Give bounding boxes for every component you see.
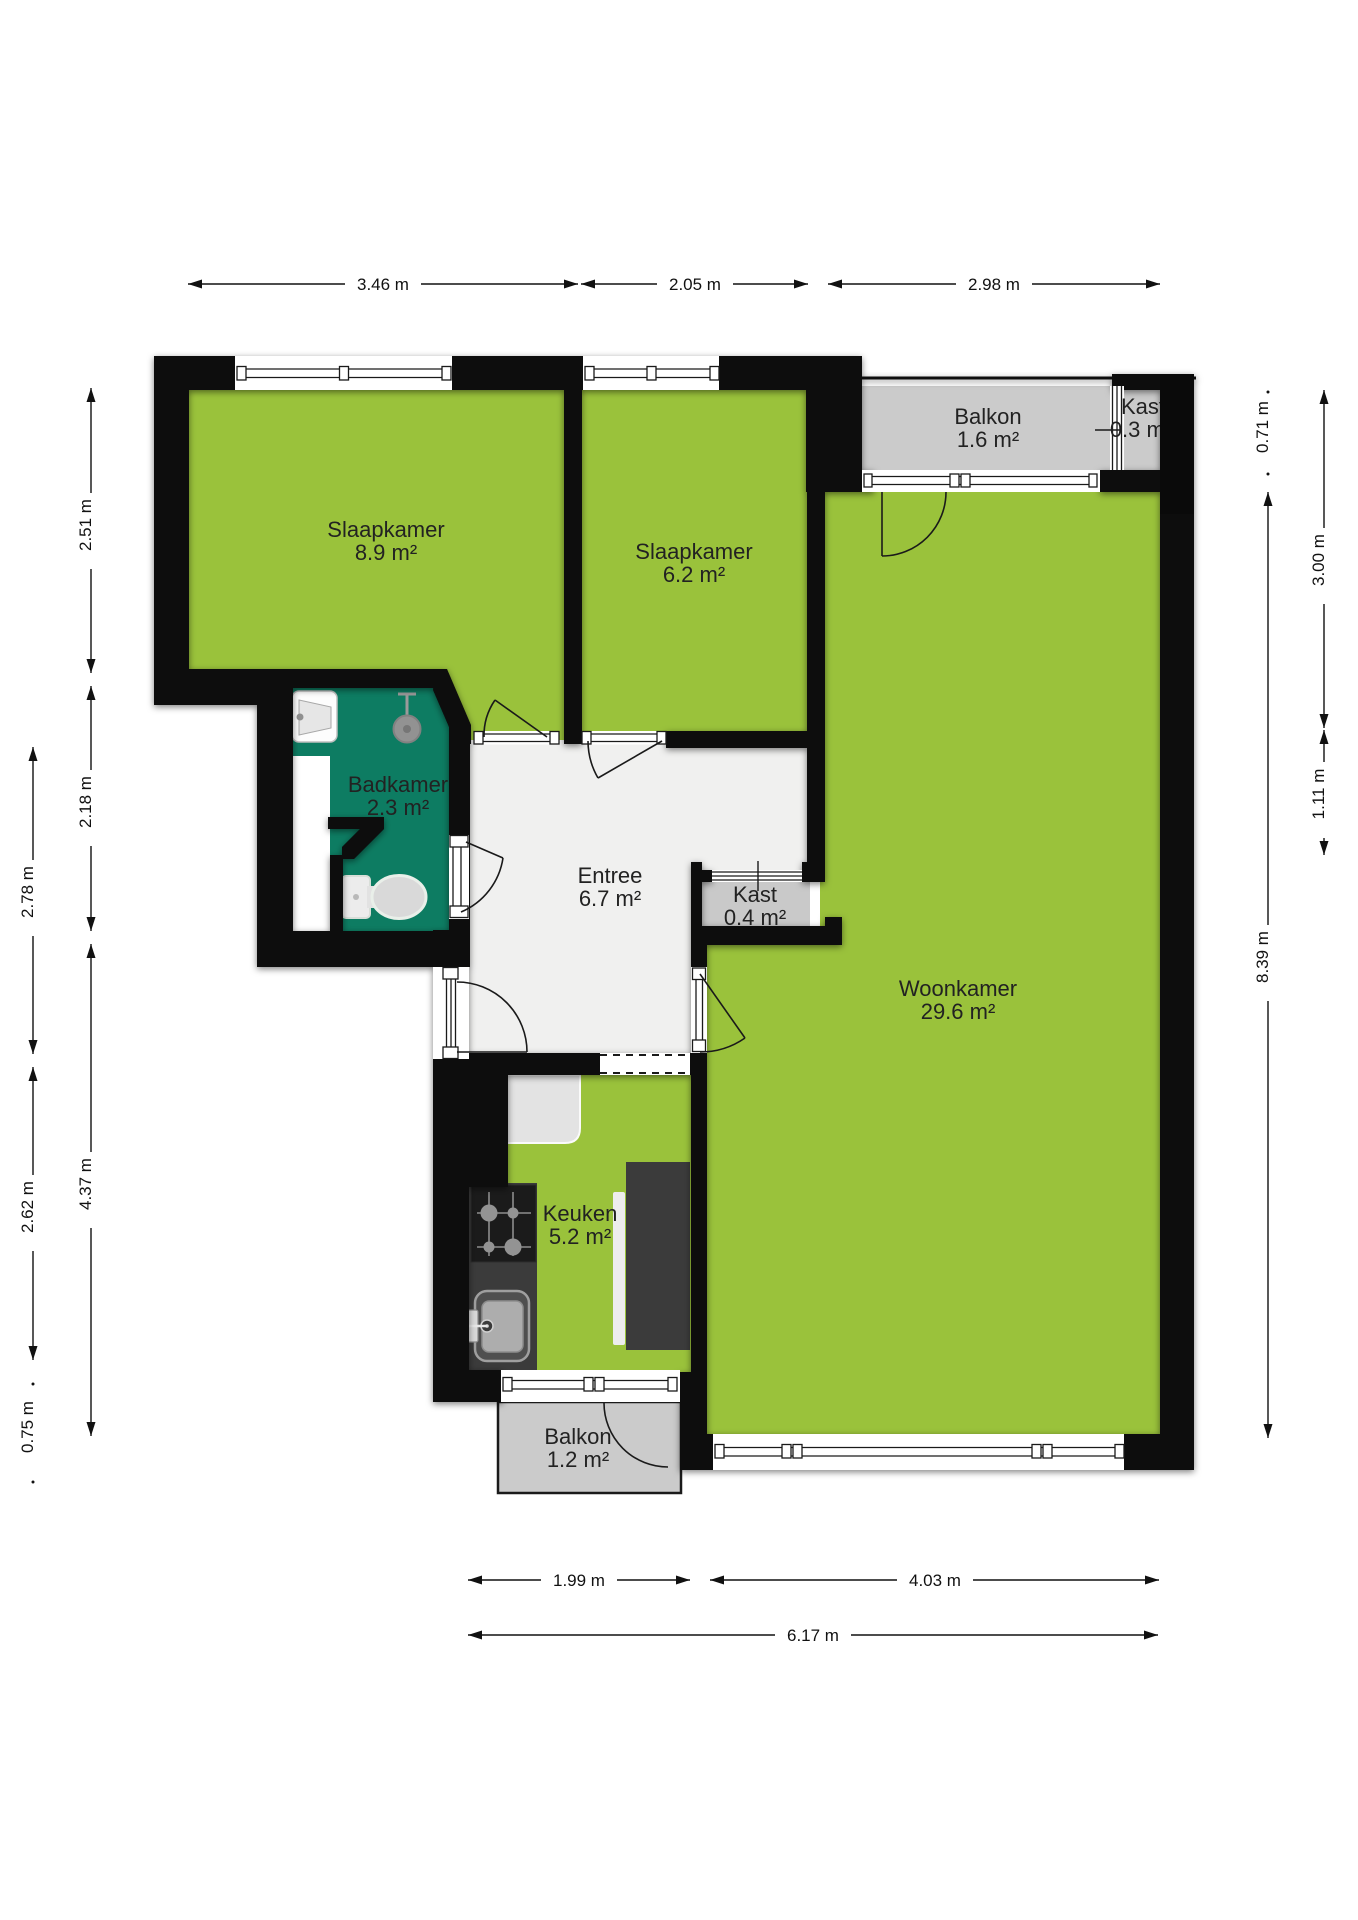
svg-text:1.99 m: 1.99 m: [553, 1571, 605, 1590]
svg-text:1.11 m: 1.11 m: [1309, 769, 1328, 820]
svg-text:8.39 m: 8.39 m: [1253, 931, 1272, 983]
svg-text:3.00 m: 3.00 m: [1309, 534, 1328, 586]
svg-text:4.03 m: 4.03 m: [909, 1571, 961, 1590]
svg-text:6.17 m: 6.17 m: [787, 1626, 839, 1645]
svg-text:2.05 m: 2.05 m: [669, 275, 721, 294]
svg-text:6.2 m²: 6.2 m²: [663, 562, 725, 587]
svg-text:Balkon: Balkon: [544, 1424, 611, 1449]
svg-text:2.18 m: 2.18 m: [76, 776, 95, 828]
svg-text:0.71 m: 0.71 m: [1253, 401, 1272, 453]
svg-text:0.75 m: 0.75 m: [18, 1401, 37, 1453]
svg-text:Keuken: Keuken: [543, 1201, 618, 1226]
svg-text:5.2 m²: 5.2 m²: [549, 1224, 611, 1249]
svg-text:2.78 m: 2.78 m: [18, 866, 37, 918]
svg-text:Kast: Kast: [733, 882, 777, 907]
svg-text:Entree: Entree: [578, 863, 643, 888]
svg-text:Badkamer: Badkamer: [348, 772, 448, 797]
svg-text:29.6 m²: 29.6 m²: [921, 999, 996, 1024]
svg-text:Slaapkamer: Slaapkamer: [327, 517, 444, 542]
svg-text:2.62 m: 2.62 m: [18, 1181, 37, 1233]
svg-text:6.7 m²: 6.7 m²: [579, 886, 641, 911]
svg-text:4.37 m: 4.37 m: [76, 1158, 95, 1210]
svg-text:2.3 m²: 2.3 m²: [367, 795, 429, 820]
svg-text:2.98 m: 2.98 m: [968, 275, 1020, 294]
svg-text:0.4 m²: 0.4 m²: [724, 905, 786, 930]
svg-text:3.46 m: 3.46 m: [357, 275, 409, 294]
svg-text:Kast: Kast: [1121, 394, 1165, 419]
svg-text:1.6 m²: 1.6 m²: [957, 427, 1019, 452]
svg-text:8.9 m²: 8.9 m²: [355, 540, 417, 565]
svg-text:2.51 m: 2.51 m: [76, 499, 95, 551]
svg-text:1.2 m²: 1.2 m²: [547, 1447, 609, 1472]
svg-text:Woonkamer: Woonkamer: [899, 976, 1017, 1001]
svg-text:Slaapkamer: Slaapkamer: [635, 539, 752, 564]
svg-text:Balkon: Balkon: [954, 404, 1021, 429]
